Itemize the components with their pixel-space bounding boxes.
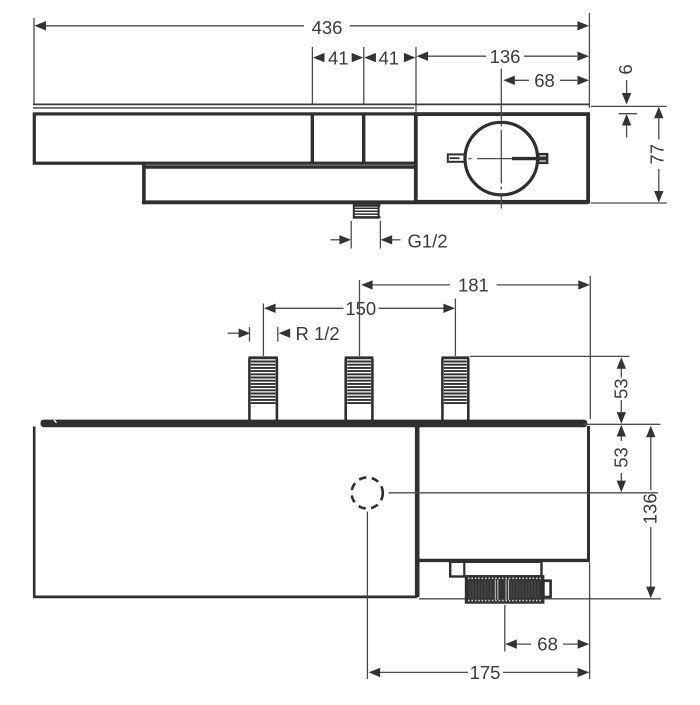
svg-text:53: 53 xyxy=(610,447,631,468)
svg-text:136: 136 xyxy=(639,493,660,524)
svg-text:68: 68 xyxy=(537,634,558,655)
svg-text:77: 77 xyxy=(646,144,667,165)
svg-text:181: 181 xyxy=(458,275,489,296)
svg-text:436: 436 xyxy=(312,17,343,38)
svg-text:150: 150 xyxy=(345,298,376,319)
svg-text:175: 175 xyxy=(470,662,501,683)
svg-text:68: 68 xyxy=(534,70,555,91)
svg-text:R 1/2: R 1/2 xyxy=(296,323,340,344)
svg-text:6: 6 xyxy=(615,64,636,74)
svg-text:53: 53 xyxy=(610,378,631,399)
svg-text:G1/2: G1/2 xyxy=(408,230,448,251)
svg-text:41: 41 xyxy=(328,47,349,68)
svg-text:41: 41 xyxy=(379,47,400,68)
svg-text:136: 136 xyxy=(490,46,521,67)
